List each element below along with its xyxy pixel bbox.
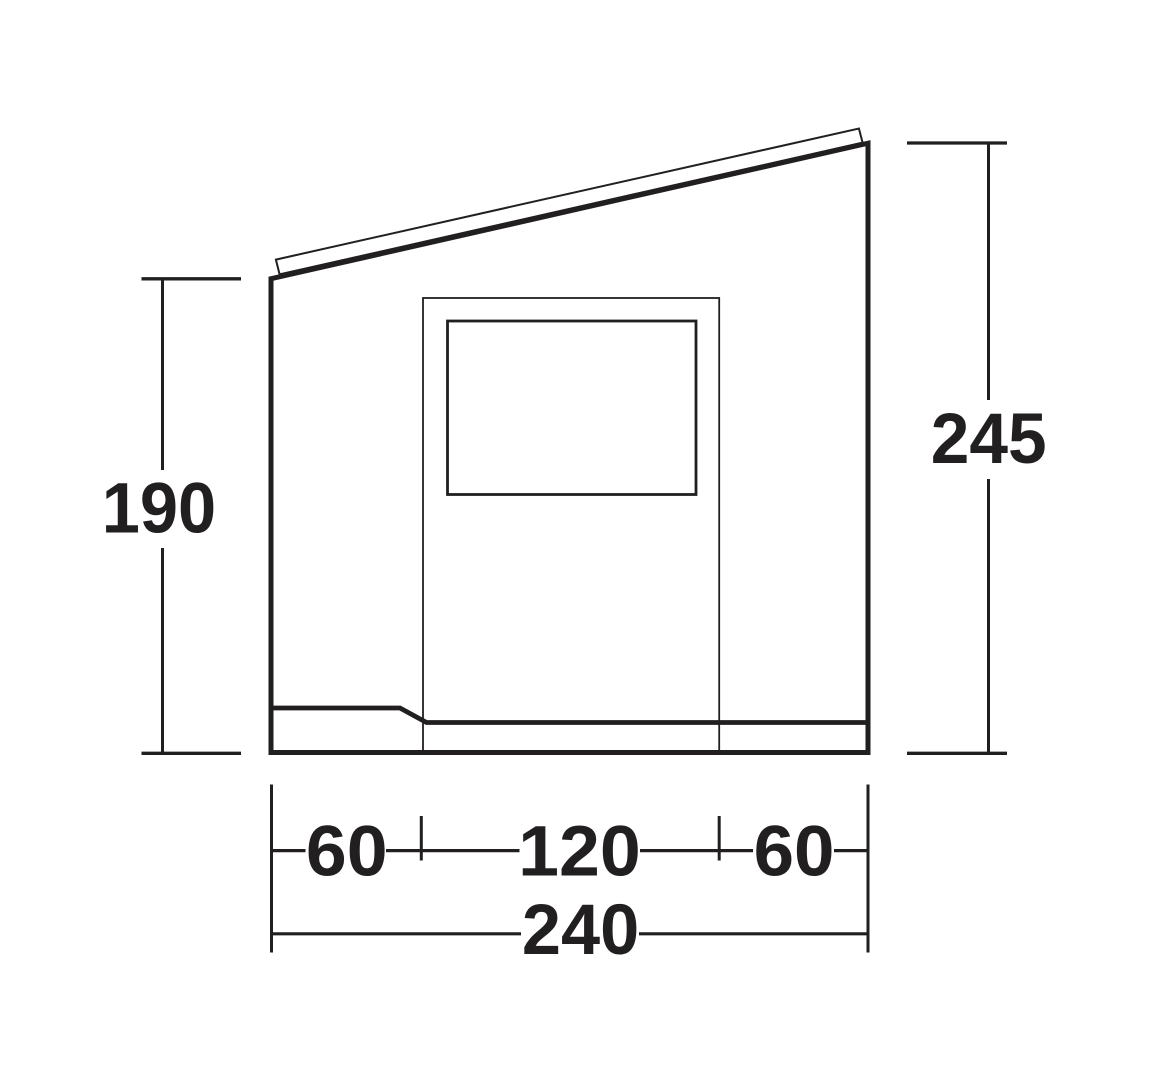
svg-text:190: 190 — [102, 469, 216, 549]
svg-text:60: 60 — [754, 812, 835, 892]
svg-text:240: 240 — [522, 890, 639, 970]
svg-text:245: 245 — [931, 399, 1047, 479]
svg-text:120: 120 — [518, 812, 641, 892]
svg-text:60: 60 — [306, 812, 388, 892]
